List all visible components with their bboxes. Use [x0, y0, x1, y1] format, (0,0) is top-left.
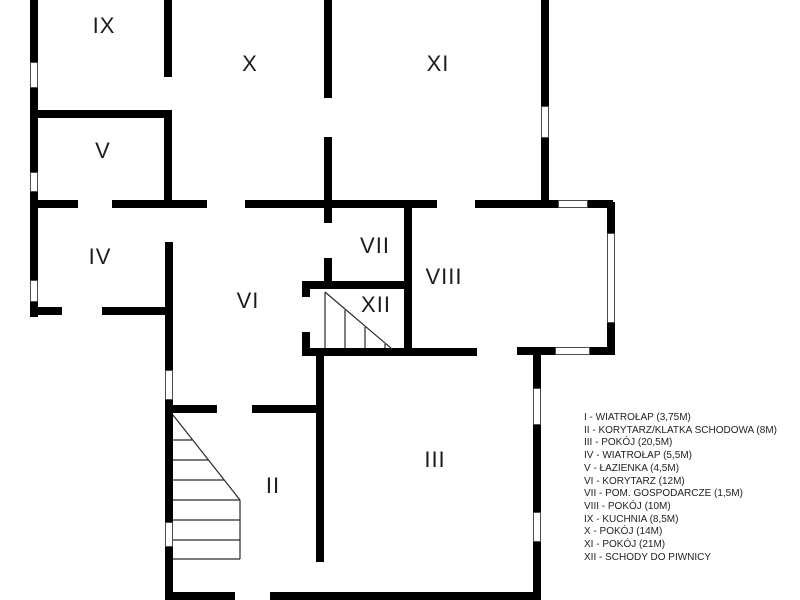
room-label-iii: III — [424, 447, 445, 473]
room-label-ix: IX — [93, 13, 116, 39]
room-label-xi: XI — [427, 51, 450, 77]
legend-item: VI - KORYTARZ (12M) — [584, 476, 794, 489]
legend-item: X - POKÓJ (14M) — [584, 526, 794, 539]
legend-item: VII - POM. GOSPODARCZE (1,5M) — [584, 488, 794, 501]
legend-item: IX - KUCHNIA (8,5M) — [584, 514, 794, 527]
room-label-vii: VII — [360, 233, 390, 259]
legend: I - WIATROŁAP (3,75M) II - KORYTARZ/KLAT… — [584, 412, 794, 564]
room-label-iv: IV — [89, 244, 112, 270]
legend-item: IV - WIATROŁAP (5,5M) — [584, 450, 794, 463]
room-label-vi: VI — [237, 288, 260, 314]
legend-item: II - KORYTARZ/KLATKA SCHODOWA (8M) — [584, 425, 794, 438]
legend-item: III - POKÓJ (20,5M) — [584, 437, 794, 450]
legend-item: XI - POKÓJ (21M) — [584, 539, 794, 552]
room-label-x: X — [242, 51, 258, 77]
legend-item: V - ŁAZIENKA (4,5M) — [584, 463, 794, 476]
legend-item: XII - SCHODY DO PIWNICY — [584, 552, 794, 565]
room-label-xii: XII — [361, 292, 391, 318]
stairs-symbol-ii — [173, 415, 240, 559]
room-label-viii: VIII — [425, 264, 462, 290]
room-label-v: V — [95, 138, 111, 164]
floor-plan: IX X XI V IV VI VII VIII XII II III I - … — [0, 0, 800, 600]
room-label-ii: II — [266, 473, 280, 499]
legend-item: I - WIATROŁAP (3,75M) — [584, 412, 794, 425]
legend-item: VIII - POKÓJ (10M) — [584, 501, 794, 514]
